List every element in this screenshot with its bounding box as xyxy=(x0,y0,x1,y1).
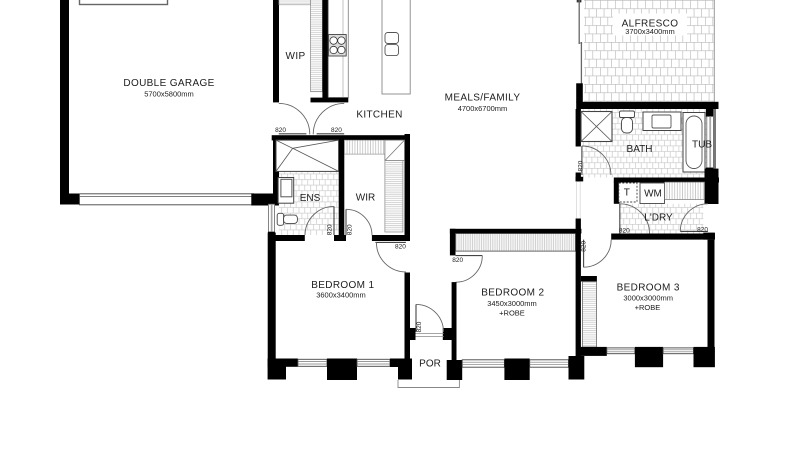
svg-text:820: 820 xyxy=(619,227,630,234)
svg-text:4700x6700mm: 4700x6700mm xyxy=(458,104,508,113)
svg-text:3000x3000mm: 3000x3000mm xyxy=(623,294,673,303)
svg-text:L'DRY: L'DRY xyxy=(644,213,673,224)
svg-text:DOUBLE GARAGE: DOUBLE GARAGE xyxy=(123,78,214,89)
svg-text:BATH: BATH xyxy=(627,144,653,155)
svg-text:820: 820 xyxy=(275,127,286,134)
svg-text:3450x3000mm: 3450x3000mm xyxy=(487,299,537,308)
svg-text:KITCHEN: KITCHEN xyxy=(356,110,402,121)
svg-text:MEALS/FAMILY: MEALS/FAMILY xyxy=(445,93,521,104)
svg-text:3700x3400mm: 3700x3400mm xyxy=(625,27,675,36)
svg-text:+ROBE: +ROBE xyxy=(635,303,661,312)
svg-text:BEDROOM 2: BEDROOM 2 xyxy=(481,288,544,299)
svg-text:820: 820 xyxy=(395,243,406,250)
svg-text:TUB: TUB xyxy=(692,140,712,151)
svg-text:820: 820 xyxy=(331,127,342,134)
svg-text:T: T xyxy=(624,188,630,199)
svg-text:BEDROOM 3: BEDROOM 3 xyxy=(617,283,680,294)
svg-text:ENS: ENS xyxy=(300,193,321,204)
svg-text:WIR: WIR xyxy=(356,193,375,204)
svg-text:820: 820 xyxy=(577,160,584,171)
svg-text:820: 820 xyxy=(581,240,588,251)
svg-text:WM: WM xyxy=(644,189,662,200)
svg-text:5700x5800mm: 5700x5800mm xyxy=(144,90,194,99)
svg-text:820: 820 xyxy=(697,226,708,233)
svg-text:+ROBE: +ROBE xyxy=(499,309,525,318)
svg-text:820: 820 xyxy=(347,224,354,235)
svg-text:POR: POR xyxy=(419,359,441,370)
svg-text:3600x3400mm: 3600x3400mm xyxy=(316,290,366,299)
svg-text:820: 820 xyxy=(452,257,463,264)
svg-text:WIP: WIP xyxy=(286,51,306,62)
svg-text:820: 820 xyxy=(416,321,423,332)
svg-text:820: 820 xyxy=(327,224,334,235)
